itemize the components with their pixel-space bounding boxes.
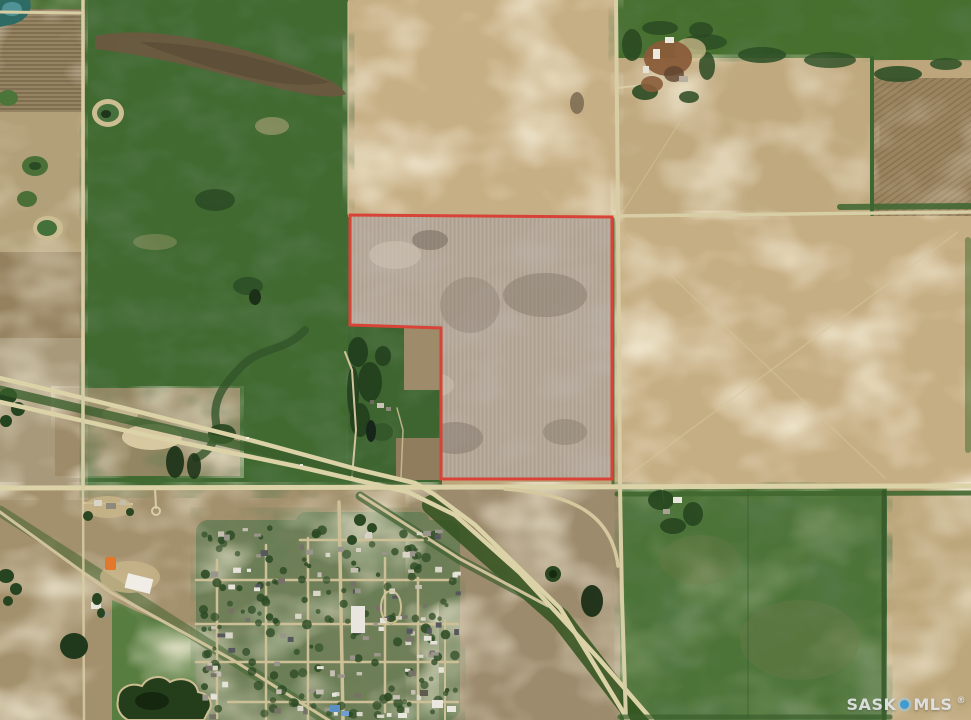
orange-quonset — [105, 557, 116, 570]
town-tree — [248, 606, 256, 614]
town-tree — [309, 645, 313, 649]
town-house — [406, 637, 414, 642]
town-tree — [270, 671, 278, 679]
town-house — [224, 535, 230, 541]
aerial-imagery — [0, 0, 971, 720]
town-house — [278, 578, 285, 584]
texture-bottomright — [887, 487, 971, 720]
town-house — [222, 682, 228, 688]
white-roof-3 — [398, 713, 407, 718]
town-house — [218, 634, 226, 638]
town-house — [430, 641, 437, 644]
town-tree — [315, 643, 324, 652]
town-house — [233, 568, 241, 573]
trees-left-edge-3 — [0, 415, 12, 427]
town-tree — [241, 610, 245, 614]
town-tree — [261, 597, 269, 605]
town-tree — [351, 561, 356, 566]
town-tree — [453, 688, 458, 693]
town-tree — [312, 531, 320, 539]
town-tree — [265, 555, 273, 563]
town-ne-tree-2 — [367, 523, 377, 533]
town-house — [309, 689, 314, 693]
farm-ne-building-3 — [643, 66, 649, 73]
town-house — [387, 713, 392, 717]
town-tree — [450, 651, 460, 661]
road-stub-topleft — [0, 12, 80, 13]
town-house — [454, 572, 461, 576]
town-house — [211, 673, 217, 677]
town-house — [357, 712, 363, 716]
town-house — [325, 708, 331, 712]
farmstead-building-2 — [386, 407, 391, 411]
town-tree — [408, 573, 416, 581]
grid-road-west-vertical-south — [83, 488, 84, 720]
town-house — [431, 652, 439, 656]
slough-topmiddle — [570, 92, 584, 114]
town-ne-tree-1 — [354, 514, 366, 526]
town-tree — [424, 537, 429, 542]
town-tree — [201, 570, 210, 579]
watermark-registered-symbol: ® — [957, 696, 967, 706]
farm-w-building-3 — [120, 500, 126, 505]
town-tree — [397, 706, 405, 714]
town-tree — [316, 609, 321, 614]
town-house — [435, 534, 441, 539]
town-house — [254, 534, 261, 537]
town-house — [435, 567, 442, 573]
town-house — [376, 605, 383, 611]
satellite-map-screenshot: SASK MLS ® — [0, 0, 971, 720]
slough-dark-scrub-1 — [166, 446, 184, 478]
town-house — [318, 572, 322, 577]
town-tree — [304, 562, 308, 566]
tree-band-6 — [930, 58, 962, 70]
turnaround-stub — [155, 488, 156, 508]
town-tree — [391, 613, 395, 617]
town-ne-tree-3 — [347, 535, 357, 545]
town-house — [407, 629, 413, 634]
town-house — [338, 547, 343, 552]
town-house — [276, 689, 281, 694]
town-house — [206, 666, 213, 671]
town-tree — [294, 649, 300, 655]
farm-w-building-1 — [94, 500, 102, 506]
farmstead-pond — [366, 420, 376, 442]
town-tree — [372, 701, 381, 710]
town-tree — [422, 553, 431, 562]
town-tree — [324, 615, 331, 622]
town-tree — [299, 693, 305, 699]
town-house — [456, 591, 461, 595]
tree-band-5 — [874, 66, 922, 82]
pond-complex-core — [135, 692, 169, 710]
town-tree — [298, 668, 307, 677]
town-house — [411, 690, 415, 695]
town-house — [218, 531, 224, 536]
town-house — [297, 706, 303, 711]
pond-ramp-core — [549, 570, 557, 578]
vehicle-1 — [246, 437, 249, 439]
town-tree — [265, 582, 270, 587]
farmstead-trees-1 — [348, 337, 368, 367]
parcel-smudge-5 — [412, 230, 448, 250]
town-tree — [437, 616, 442, 621]
town-house — [435, 530, 443, 533]
hedgerow-right-horizontal — [840, 206, 971, 207]
town-house — [243, 528, 248, 531]
town-tree — [445, 688, 450, 693]
town-house — [303, 709, 308, 714]
town-house — [423, 531, 431, 536]
slough-left-2 — [17, 191, 37, 207]
town-tree — [201, 683, 208, 690]
town-tree — [255, 619, 262, 626]
parcel-smudge-1 — [503, 273, 587, 317]
town-house — [332, 693, 337, 697]
town-tree — [212, 647, 216, 651]
blue-roof-1 — [330, 705, 340, 712]
town-tree — [202, 650, 210, 658]
watermark-mls-text: MLS — [913, 695, 952, 714]
slough-left-3-water — [37, 220, 57, 236]
parcel-smudge-2 — [440, 277, 500, 333]
town-tree — [412, 615, 420, 623]
farm-w-building-2 — [106, 503, 116, 509]
town-tree — [441, 630, 451, 640]
town-tree — [402, 699, 407, 704]
slough-left-1-core — [29, 162, 41, 170]
tan-blotch-1 — [255, 117, 289, 135]
town-tree — [376, 572, 381, 577]
farm-ne-trees-5 — [679, 91, 699, 103]
town-house — [424, 636, 432, 641]
town-house — [351, 581, 356, 586]
town-tree — [301, 597, 307, 603]
town-house — [330, 670, 335, 676]
town-house — [306, 550, 313, 555]
town-house — [421, 617, 426, 620]
town-tree — [270, 697, 276, 703]
town-tree — [260, 710, 268, 718]
town-house — [350, 656, 355, 660]
town-tree — [420, 681, 428, 689]
town-house — [313, 591, 321, 596]
slough-small — [249, 289, 261, 305]
town-house — [246, 618, 251, 622]
town-house — [354, 694, 361, 698]
town-tree — [235, 551, 241, 557]
town-tree — [248, 667, 257, 676]
town-tree — [393, 637, 402, 646]
blue-roof-2 — [341, 711, 349, 716]
town-tree — [379, 694, 388, 703]
town-tree — [266, 613, 273, 620]
tree-band-4 — [804, 52, 856, 68]
town-tree — [236, 585, 242, 591]
town-tree — [323, 576, 331, 584]
town-house — [417, 532, 422, 535]
town-tree — [199, 605, 208, 614]
town-tree — [227, 601, 233, 607]
town-house — [408, 671, 415, 677]
town-house — [355, 589, 361, 594]
town-tree — [298, 576, 306, 584]
farm-e-trees-1 — [648, 490, 674, 510]
farm-e-trees-2 — [683, 502, 703, 526]
town-house — [382, 552, 387, 555]
green-thicket-1 — [195, 189, 235, 211]
town-tree — [214, 705, 222, 713]
texture-east-pasture-beige — [620, 487, 887, 720]
town-tree — [248, 658, 256, 666]
town-house — [211, 571, 219, 577]
town-house — [357, 672, 363, 675]
town-tree — [341, 588, 346, 593]
farm-ne-building-4 — [679, 76, 688, 82]
town-house — [393, 695, 400, 699]
town-tree — [440, 598, 446, 604]
farmstead-building-3 — [370, 400, 374, 404]
tan-blotch-2 — [133, 234, 177, 250]
town-tree — [340, 600, 348, 608]
town-tree — [429, 677, 434, 682]
town-house — [228, 585, 235, 590]
mls-dot-icon — [900, 700, 909, 709]
town-house — [405, 708, 409, 713]
white-roof-1 — [432, 700, 443, 708]
town-hall-building — [351, 606, 365, 633]
parcel-smudge-4 — [543, 419, 587, 445]
town-ne-house-2 — [356, 548, 361, 552]
farm-e-building-1 — [673, 497, 682, 503]
town-tree — [216, 545, 223, 552]
town-house — [454, 629, 459, 635]
town-tree — [266, 628, 275, 637]
town-tree — [388, 685, 395, 692]
pasture-brown-tint-1 — [740, 600, 860, 680]
notch-subfield-upper — [404, 328, 441, 390]
town-tree — [414, 552, 422, 560]
farm-e-trees-3 — [660, 518, 686, 534]
farmstead-trees-2 — [358, 362, 382, 402]
town-house — [351, 568, 359, 573]
town-tree — [280, 567, 287, 574]
town-tree — [326, 590, 331, 595]
town-house — [247, 569, 251, 572]
town-house — [377, 715, 384, 718]
sask-mls-watermark: SASK MLS ® — [847, 695, 966, 714]
farm-ne-dirt-2 — [641, 76, 663, 92]
slough-dark-scrub-2 — [187, 453, 201, 479]
farm-ne-trees-3 — [689, 22, 713, 38]
texture-right-brown — [872, 78, 971, 216]
town-house — [211, 694, 217, 699]
town-house — [326, 553, 331, 557]
town-tree — [208, 537, 213, 542]
slough-dark-west — [60, 633, 88, 659]
vehicle-2 — [300, 464, 303, 466]
tree-band-3 — [738, 47, 786, 63]
town-tree — [290, 669, 299, 678]
white-roof-2 — [447, 706, 456, 712]
town-house — [379, 627, 384, 631]
tree-band-1 — [642, 21, 678, 35]
parcel-light-1 — [369, 241, 421, 269]
pond-ringed-core — [101, 110, 111, 118]
farm-w-tree-2 — [126, 508, 134, 516]
town-house — [202, 695, 208, 701]
town-tree — [254, 681, 264, 691]
town-tree — [289, 698, 298, 707]
town-house — [229, 608, 234, 613]
town-house — [254, 587, 260, 591]
farm-ne-building-2 — [665, 37, 674, 43]
town-tree — [311, 703, 317, 709]
town-tree — [399, 530, 408, 539]
town-ne-house-1 — [366, 532, 372, 537]
town-house — [427, 628, 432, 634]
town-house — [374, 623, 378, 626]
town-tree — [272, 579, 277, 584]
trees-sw-5 — [97, 608, 105, 618]
town-tree — [211, 613, 220, 622]
town-tree — [267, 525, 273, 531]
town-tree — [369, 541, 376, 548]
trees-sw-4 — [92, 593, 102, 605]
town-tree — [345, 619, 350, 624]
town-house — [288, 637, 294, 642]
town-tree — [272, 618, 278, 624]
town-house — [436, 622, 442, 627]
grid-road-horizontal — [0, 486, 971, 488]
town-house — [256, 554, 261, 557]
teal-pond-light — [2, 2, 22, 16]
town-house — [403, 552, 410, 558]
town-house — [374, 653, 381, 657]
town-house — [209, 714, 216, 719]
town-tree — [302, 557, 307, 562]
town-tree — [302, 620, 312, 630]
town-tree — [354, 654, 362, 662]
town-house — [274, 708, 281, 713]
slough-highway-dark — [581, 585, 603, 617]
town-tree — [429, 613, 436, 620]
town-house — [338, 674, 345, 677]
town-tree — [201, 531, 207, 537]
town-tree — [242, 648, 250, 656]
dark-roof-1 — [420, 690, 428, 696]
town-house — [439, 667, 444, 673]
town-house — [274, 662, 280, 667]
town-house — [417, 655, 424, 658]
town-tree — [391, 548, 398, 555]
town-house — [225, 632, 233, 638]
town-house — [363, 636, 369, 640]
town-tree — [407, 702, 412, 707]
trees-sw-3 — [3, 596, 13, 606]
town-tree — [257, 611, 262, 616]
farmstead-trees-4 — [375, 346, 391, 366]
town-tree — [350, 634, 356, 640]
town-tree — [219, 584, 226, 591]
pasture-brown-tint-2 — [660, 535, 740, 585]
town-house — [280, 633, 286, 638]
town-tree — [430, 709, 435, 714]
town-house — [316, 690, 324, 695]
farmstead-building-1 — [377, 403, 384, 408]
trees-sw-2 — [10, 583, 22, 595]
town-tree — [371, 659, 379, 667]
farm-w-tree-1 — [83, 511, 93, 521]
town-house — [423, 604, 427, 608]
town-tree — [201, 627, 206, 632]
town-tree — [217, 625, 222, 630]
town-house — [261, 550, 269, 556]
town-house — [317, 666, 324, 669]
town-house — [295, 614, 301, 619]
town-tree — [449, 577, 457, 585]
town-house — [211, 626, 216, 629]
farm-e-building-2 — [663, 509, 670, 514]
town-house — [228, 648, 235, 653]
town-house — [300, 545, 304, 551]
farm-ne-building-1 — [653, 49, 660, 59]
town-house — [408, 570, 414, 573]
farm-ne-trees-1 — [622, 29, 642, 61]
watermark-sask-text: SASK — [847, 695, 897, 714]
town-house — [415, 585, 422, 589]
